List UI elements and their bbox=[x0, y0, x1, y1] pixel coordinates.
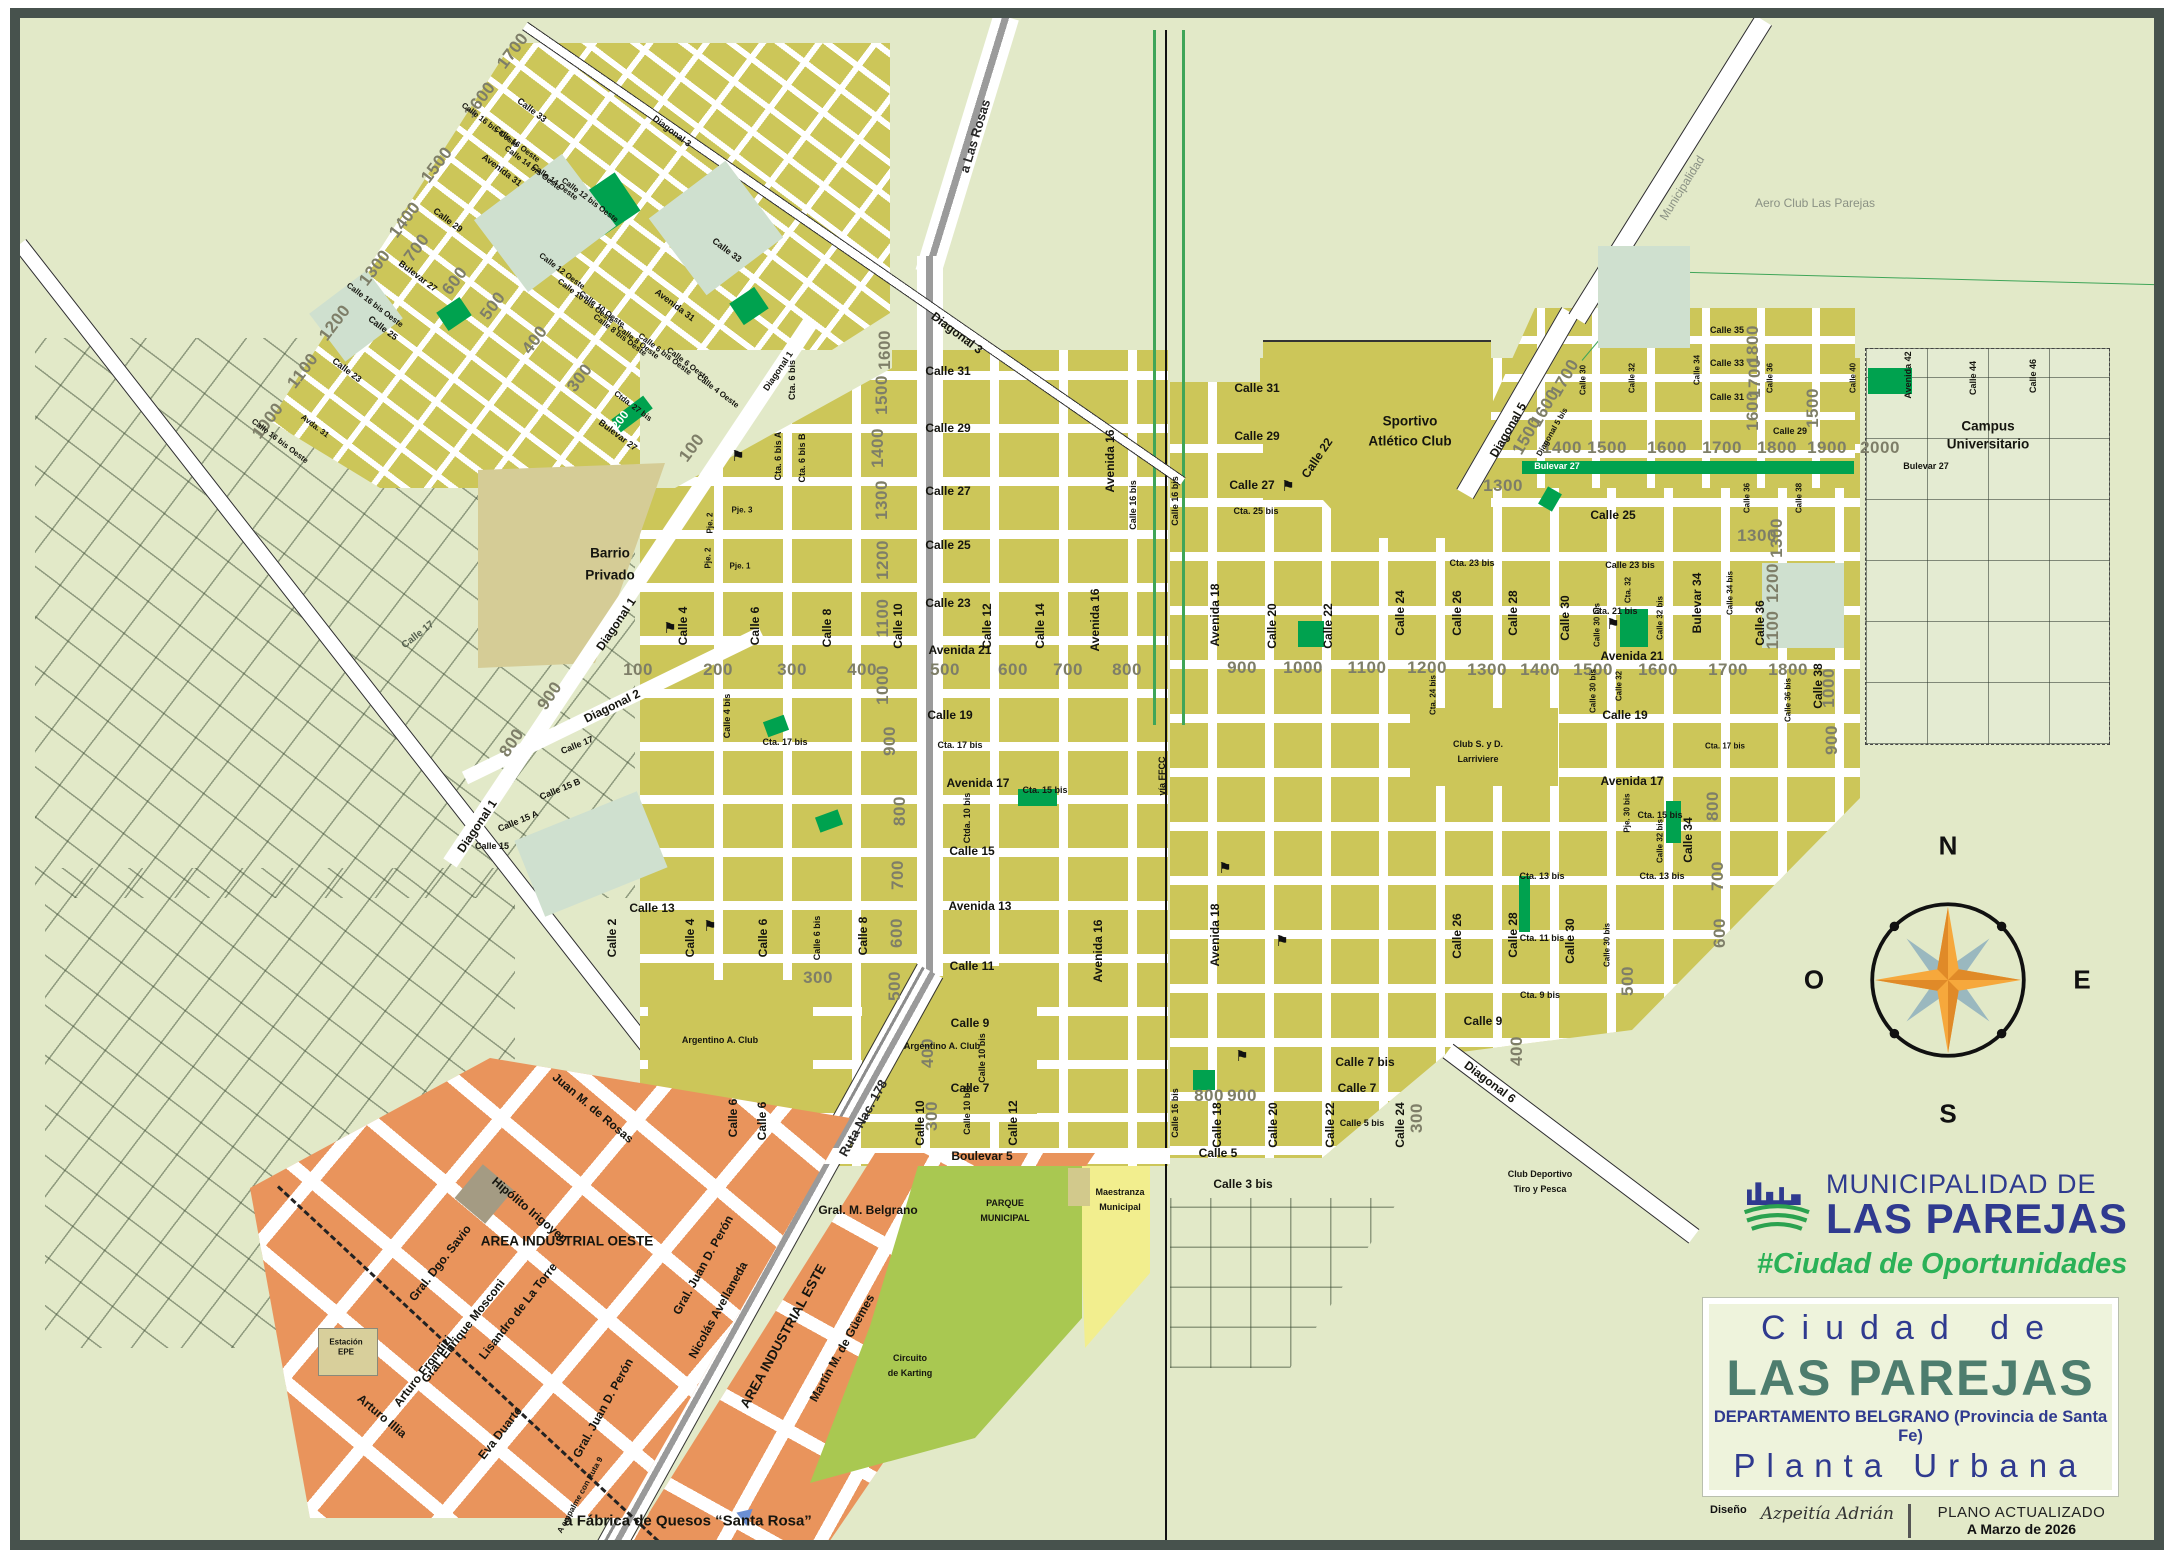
map-label: Calle 23 bis bbox=[1605, 560, 1655, 570]
map-label: Calle 30 bbox=[1563, 918, 1577, 963]
green-square bbox=[1666, 801, 1681, 843]
map-label: 900 bbox=[1227, 658, 1257, 678]
map-label: Cta. 17 bis bbox=[1705, 742, 1745, 751]
map-label: Cta. 13 bis bbox=[1639, 871, 1684, 881]
map-label: Calle 19 bbox=[1602, 708, 1647, 722]
map-label: a Fábrica de Quesos “Santa Rosa” bbox=[564, 1513, 812, 1530]
map-label: Avenida 16 bbox=[1091, 920, 1105, 983]
map-label: Calle 9 bbox=[951, 1016, 990, 1030]
map-label: 900 bbox=[880, 726, 900, 756]
map-label: 600 bbox=[998, 660, 1028, 680]
map-label: Calle 22 bbox=[1321, 603, 1335, 648]
map-label: Pje. 2 bbox=[706, 513, 715, 534]
map-label: Calle 32 bis bbox=[1656, 596, 1665, 640]
map-label: Calle 32 bis bbox=[1656, 819, 1665, 863]
map-label: vía FFCC bbox=[1157, 756, 1167, 795]
school-flag-icon: ⚑ bbox=[703, 917, 716, 935]
map-label: Avenida 21 bbox=[1601, 649, 1664, 663]
map-label: 1600 bbox=[1647, 438, 1687, 458]
map-label: Calle 29 bbox=[1234, 429, 1279, 443]
title-las-parejas: LAS PAREJAS bbox=[1709, 1349, 2112, 1407]
map-label: Calle 4 bbox=[683, 919, 697, 958]
map-label: Calle 5 bis bbox=[1340, 1118, 1385, 1128]
map-label: Calle 36 bbox=[1743, 483, 1752, 513]
map-label: Larriviere bbox=[1457, 754, 1498, 764]
map-label: Calle 11 bbox=[950, 959, 995, 973]
map-label: Calle 30 bbox=[1579, 365, 1588, 395]
plan-updated-date: A Marzo de 2026 bbox=[1925, 1521, 2118, 1537]
map-label: 1200 bbox=[1763, 563, 1783, 603]
map-label: Calle 27 bbox=[1229, 478, 1274, 492]
map-label: Calle 7 bis bbox=[1335, 1055, 1394, 1069]
map-label: 600 bbox=[1710, 918, 1730, 948]
map-label: Pje. 3 bbox=[732, 506, 753, 515]
map-label: Calle 3 bis bbox=[1213, 1177, 1272, 1191]
map-label: Cta. 24 bis bbox=[1429, 675, 1438, 715]
map-label: 900 bbox=[1822, 725, 1842, 755]
map-label: Calle 6 bbox=[748, 607, 762, 646]
map-label: Avenida 13 bbox=[949, 899, 1012, 913]
title-ciudad-de: Ciudad de bbox=[1709, 1309, 2112, 1348]
map-label: Pje. 1 bbox=[730, 562, 751, 571]
map-label: Calle 15 bbox=[949, 844, 994, 858]
logo-tagline: #Ciudad de Oportunidades bbox=[1742, 1248, 2142, 1281]
map-label: Avenida 16 bbox=[1088, 589, 1102, 652]
map-label: Privado bbox=[585, 568, 635, 583]
map-label: 1700 bbox=[1708, 660, 1748, 680]
map-label: Calle 34 bbox=[1681, 817, 1695, 862]
map-label: Calle 5 bbox=[1199, 1146, 1238, 1160]
map-label: Calle 20 bbox=[1265, 603, 1279, 648]
map-label: 1400 bbox=[1520, 660, 1560, 680]
green-square bbox=[1519, 876, 1530, 932]
map-label: Municipal bbox=[1099, 1202, 1141, 1212]
map-label: Calle 15 bbox=[475, 841, 509, 851]
map-label: 1300 bbox=[872, 480, 892, 520]
municipality-logo: MUNICIPALIDAD DE LAS PAREJAS #Ciudad de … bbox=[1742, 1170, 2142, 1281]
map-label: Maestranza bbox=[1095, 1187, 1144, 1197]
map-label: 1100 bbox=[1348, 658, 1387, 678]
map-label: 1300 bbox=[1483, 476, 1523, 496]
map-label: Calle 6 bbox=[726, 1099, 740, 1138]
designer-signature: Azpeitía Adrián bbox=[1761, 1504, 1894, 1524]
map-label: Calle 28 bbox=[1506, 912, 1520, 957]
map-label: Avenida 21 bbox=[929, 643, 992, 657]
school-flag-icon: ⚑ bbox=[1275, 932, 1288, 950]
compass-rose bbox=[1858, 890, 2038, 1070]
railway-corridor bbox=[1153, 30, 1185, 725]
map-label: Calle 10 bbox=[891, 603, 905, 648]
map-label: 800 bbox=[1703, 791, 1723, 821]
map-label: Calle 24 bbox=[1393, 590, 1407, 635]
map-label: Calle 20 bbox=[1266, 1102, 1280, 1147]
map-label: Boulevar 5 bbox=[951, 1149, 1012, 1163]
map-label: Calle 31 bbox=[1234, 381, 1279, 395]
map-label: Barrio bbox=[590, 546, 630, 561]
map-label: Cta. 25 bis bbox=[1233, 506, 1278, 516]
map-label: Calle 23 bbox=[925, 596, 970, 610]
school-flag-icon: ⚑ bbox=[1218, 859, 1231, 877]
map-label: 1000 bbox=[1819, 668, 1839, 708]
map-label: Calle 6 bbox=[756, 919, 770, 958]
map-label: Avenida 17 bbox=[947, 776, 1010, 790]
map-label: Pje. 2 bbox=[704, 548, 713, 569]
map-label: Avenida 42 bbox=[1903, 351, 1913, 398]
map-label: 1600 bbox=[875, 330, 895, 370]
map-label: Calle 24 bbox=[1393, 1102, 1407, 1147]
map-label: 2000 bbox=[1860, 438, 1900, 458]
map-label: 1500 bbox=[1803, 388, 1823, 428]
map-label: Avenida 18 bbox=[1208, 584, 1222, 647]
map-label: Cta. 23 bis bbox=[1449, 558, 1494, 568]
map-label: Calle 34 bbox=[1693, 355, 1702, 385]
map-label: Avenida 16 bbox=[1103, 430, 1117, 493]
map-label: PARQUE bbox=[986, 1198, 1024, 1208]
compass-south-label: S bbox=[1939, 1099, 1956, 1130]
map-label: 1700 bbox=[1702, 438, 1742, 458]
map-label: Calle 12 bbox=[980, 603, 994, 648]
map-label: Calle 34 bis bbox=[1726, 571, 1735, 615]
map-label: Argentino A. Club bbox=[904, 1041, 980, 1051]
map-title-box: Ciudad de LAS PAREJAS DEPARTAMENTO BELGR… bbox=[1703, 1298, 2118, 1496]
map-label: 700 bbox=[1053, 660, 1083, 680]
map-label: Calle 35 bbox=[1710, 325, 1744, 335]
map-label: Calle 12 bbox=[1006, 1100, 1020, 1145]
title-planta-urbana: Planta Urbana bbox=[1709, 1447, 2112, 1485]
pale-block bbox=[1598, 246, 1690, 348]
compass-east-label: E bbox=[2073, 965, 2090, 996]
map-label: Calle 13 bbox=[629, 901, 674, 915]
map-label: Calle 30 bbox=[1558, 595, 1572, 640]
map-label: 1100 bbox=[873, 599, 893, 638]
map-label: Cta. 9 bis bbox=[1520, 990, 1560, 1000]
map-label: 200 bbox=[703, 660, 733, 680]
map-label: 700 bbox=[1708, 861, 1728, 891]
map-label: Calle 16 bis bbox=[1170, 1088, 1180, 1138]
map-label: 500 bbox=[930, 660, 960, 680]
map-label: Calle 31 bbox=[925, 364, 970, 378]
map-label: Bulevar 27 bbox=[1903, 461, 1949, 471]
map-label: Calle 27 bbox=[925, 484, 970, 498]
map-label: Cta. 17 bis bbox=[762, 737, 807, 747]
map-label: Calle 36 bbox=[1766, 363, 1775, 393]
map-label: Calle 33 bbox=[1710, 358, 1744, 368]
school-flag-icon: ⚑ bbox=[663, 619, 676, 637]
map-label: Calle 8 bbox=[820, 609, 834, 648]
map-label: Calle 31 bbox=[1710, 392, 1744, 402]
map-label: Calle 32 bbox=[1615, 671, 1624, 701]
map-label: Cta. 6 bis A bbox=[773, 432, 783, 481]
map-label: 1200 bbox=[873, 540, 893, 580]
plan-updated-label: PLANO ACTUALIZADO bbox=[1925, 1504, 2118, 1521]
grid-southeast-faint bbox=[1170, 1198, 1440, 1368]
parque-tan-block bbox=[1068, 1168, 1090, 1206]
map-label: 900 bbox=[1227, 1086, 1257, 1106]
map-label: Calle 4 bbox=[676, 607, 690, 646]
map-canvas: N S E O MUNICIPALIDAD DE LAS PAREJAS #Ci… bbox=[10, 8, 2164, 1550]
map-label: Calle 44 bbox=[1968, 361, 1978, 395]
map-label: Calle 29 bbox=[1773, 426, 1807, 436]
map-label: Calle 19 bbox=[927, 708, 972, 722]
map-label: 400 bbox=[1507, 1036, 1527, 1066]
school-flag-icon: ⚑ bbox=[1281, 477, 1294, 495]
logo-line2: LAS PAREJAS bbox=[1826, 1198, 2128, 1240]
map-label: Calle 26 bbox=[1450, 913, 1464, 958]
footer-divider bbox=[1908, 1504, 1911, 1538]
map-label: 300 bbox=[803, 968, 833, 988]
map-label: 1600 bbox=[1743, 391, 1763, 431]
municipality-logo-icon bbox=[1742, 1174, 1814, 1236]
compass-west-label: O bbox=[1804, 965, 1824, 996]
map-label: Calle 46 bbox=[2028, 359, 2038, 393]
map-label: 1400 bbox=[868, 428, 888, 468]
map-page: N S E O MUNICIPALIDAD DE LAS PAREJAS #Ci… bbox=[0, 0, 2174, 1558]
map-label: Ctda. 10 bis bbox=[962, 793, 972, 844]
map-label: Calle 16 bis bbox=[1128, 480, 1138, 530]
map-label: MUNICIPAL bbox=[980, 1213, 1029, 1223]
map-label: 800 bbox=[890, 796, 910, 826]
map-label: Cta. 17 bis bbox=[937, 740, 982, 750]
design-label: Diseño bbox=[1710, 1504, 1747, 1516]
campus-universitario-area bbox=[1865, 348, 2110, 745]
map-label: Cta. 6 bis B bbox=[797, 433, 807, 482]
map-label: Calle 16 bis bbox=[1170, 476, 1180, 526]
map-label: Atlético Club bbox=[1368, 434, 1451, 449]
map-label: 500 bbox=[885, 971, 905, 1001]
map-label: Calle 32 bbox=[1628, 363, 1637, 393]
map-label: Gral. M. Belgrano bbox=[818, 1203, 917, 1217]
school-flag-icon: ⚑ bbox=[1235, 1047, 1248, 1065]
map-label: Avenida 17 bbox=[1601, 774, 1664, 788]
map-label: Cta. 6 bis bbox=[787, 360, 797, 400]
map-label: Estación bbox=[329, 1338, 362, 1347]
map-label: Campus bbox=[1961, 419, 2014, 434]
map-label: Sportivo bbox=[1383, 414, 1438, 429]
map-label: Club S. y D. bbox=[1453, 739, 1503, 749]
map-label: 1800 bbox=[1757, 438, 1797, 458]
map-label: 300 bbox=[922, 1101, 942, 1131]
map-label: 100 bbox=[623, 660, 653, 680]
map-label: 700 bbox=[888, 860, 908, 890]
map-label: Calle 4 bis bbox=[722, 694, 732, 739]
map-label: Tiro y Pesca bbox=[1514, 1184, 1567, 1194]
map-label: Calle 2 bbox=[605, 919, 619, 958]
map-label: Calle 9 bbox=[1464, 1014, 1503, 1028]
map-label: Calle 18 bbox=[1210, 1102, 1224, 1147]
map-label: Calle 25 bbox=[925, 538, 970, 552]
compass-north-label: N bbox=[1939, 831, 1958, 862]
map-label: Calle 30 bis bbox=[1589, 669, 1598, 713]
map-label: 500 bbox=[1618, 966, 1638, 996]
map-label: Calle 6 bbox=[755, 1102, 769, 1141]
title-departamento: DEPARTAMENTO BELGRANO (Provincia de Sant… bbox=[1709, 1408, 2112, 1446]
map-label: Calle 30 bis bbox=[1603, 923, 1612, 967]
map-label: Calle 6 bis bbox=[812, 916, 822, 961]
map-label: Cta. 13 bis bbox=[1519, 871, 1564, 881]
map-label: Calle 14 bbox=[1033, 603, 1047, 648]
map-label: Bulevar 27 bbox=[1534, 461, 1580, 471]
map-footer: Diseño Azpeitía Adrián PLANO ACTUALIZADO… bbox=[1710, 1504, 2118, 1538]
map-label: Calle 25 bbox=[1590, 508, 1635, 522]
map-label: 300 bbox=[777, 660, 807, 680]
map-label: 1200 bbox=[1407, 658, 1447, 678]
map-label: Calle 10 bis bbox=[962, 1085, 972, 1135]
map-label: 800 bbox=[1112, 660, 1142, 680]
map-label: 1000 bbox=[1283, 658, 1323, 678]
map-label: 1300 bbox=[1467, 660, 1507, 680]
logo-line1: MUNICIPALIDAD DE bbox=[1826, 1170, 2128, 1198]
map-label: 600 bbox=[887, 918, 907, 948]
map-label: 300 bbox=[1407, 1103, 1427, 1133]
school-flag-icon: ⚑ bbox=[731, 447, 744, 465]
map-label: Club Deportivo bbox=[1508, 1169, 1573, 1179]
map-label: de Karting bbox=[888, 1368, 933, 1378]
map-label: Circuito bbox=[893, 1353, 927, 1363]
map-label: 400 bbox=[847, 660, 877, 680]
map-label: Calle 38 bbox=[1795, 483, 1804, 513]
map-label: Calle 7 bbox=[1338, 1081, 1377, 1095]
map-label: Universitario bbox=[1947, 437, 2030, 452]
map-label: EPE bbox=[338, 1348, 354, 1357]
map-label: Cta. 32 bbox=[1624, 577, 1633, 603]
school-flag-icon: ⚑ bbox=[1606, 615, 1619, 633]
map-label: Cta. 15 bis bbox=[1022, 785, 1067, 795]
map-label: Calle 26 bbox=[1450, 590, 1464, 635]
map-label: 1500 bbox=[872, 375, 892, 415]
map-label: 1900 bbox=[1807, 438, 1847, 458]
map-label: Aero Club Las Parejas bbox=[1755, 196, 1875, 210]
aero-boundary-line bbox=[1655, 271, 2164, 286]
map-label: Argentino A. Club bbox=[682, 1035, 758, 1045]
map-label: Pje. 30 bis bbox=[1623, 793, 1632, 832]
map-label: Calle 8 bbox=[856, 917, 870, 956]
map-label: Avenida 18 bbox=[1208, 904, 1222, 967]
map-label: Bulevar 34 bbox=[1690, 573, 1704, 634]
map-label: Calle 22 bbox=[1323, 1102, 1337, 1147]
map-label: Calle 29 bbox=[925, 421, 970, 435]
map-label: 1100 bbox=[1763, 611, 1783, 650]
map-label: Cta. 11 bis bbox=[1520, 933, 1565, 943]
map-label: Calle 36 bis bbox=[1784, 678, 1793, 722]
map-label: 1300 bbox=[1767, 518, 1787, 558]
map-label: 1500 bbox=[1587, 438, 1627, 458]
map-label: 1600 bbox=[1638, 660, 1678, 680]
map-label: Calle 28 bbox=[1506, 590, 1520, 635]
map-label: Calle 40 bbox=[1849, 363, 1858, 393]
